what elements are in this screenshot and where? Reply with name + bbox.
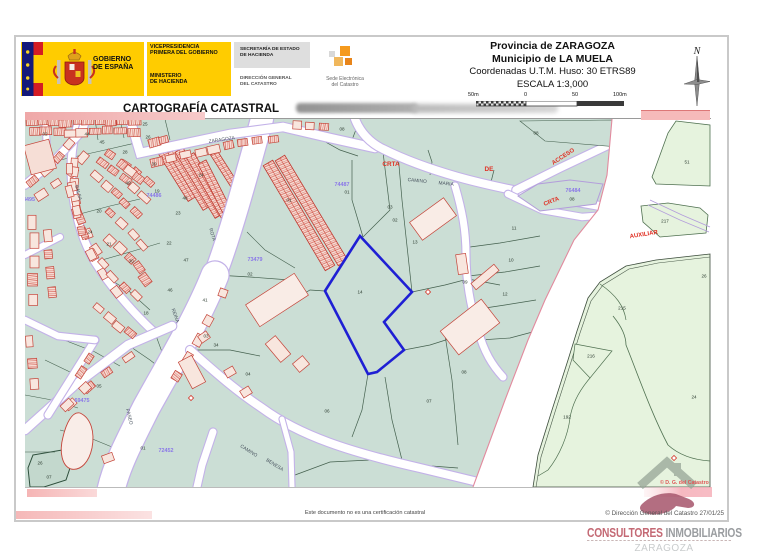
svg-text:215: 215: [618, 306, 626, 311]
svg-text:01: 01: [344, 190, 350, 195]
svg-text:39: 39: [151, 162, 157, 167]
svg-text:24: 24: [691, 395, 697, 400]
svg-text:73479: 73479: [248, 257, 263, 263]
svg-text:40: 40: [125, 181, 131, 186]
svg-text:01: 01: [140, 446, 146, 451]
svg-text:08: 08: [461, 370, 467, 375]
svg-text:© D. G. del Catastro: © D. G. del Catastro: [660, 479, 709, 486]
svg-text:34: 34: [213, 343, 219, 348]
svg-text:46: 46: [167, 288, 173, 293]
svg-text:08: 08: [533, 131, 539, 136]
svg-text:30: 30: [128, 259, 134, 264]
svg-text:217: 217: [661, 219, 669, 224]
svg-text:02: 02: [42, 132, 48, 137]
svg-text:07: 07: [46, 475, 52, 480]
svg-text:26: 26: [37, 461, 43, 466]
svg-text:21: 21: [106, 242, 112, 247]
svg-text:DE: DE: [485, 166, 495, 173]
svg-text:74487: 74487: [335, 182, 350, 188]
svg-text:05: 05: [96, 384, 102, 389]
svg-text:03: 03: [203, 334, 209, 339]
svg-text:24: 24: [198, 173, 204, 178]
svg-text:07: 07: [426, 399, 432, 404]
svg-text:76484: 76484: [566, 188, 581, 194]
svg-text:06: 06: [324, 409, 330, 414]
svg-text:44: 44: [84, 132, 90, 137]
svg-text:N: N: [693, 46, 702, 57]
svg-text:11: 11: [512, 226, 517, 231]
svg-text:69475: 69475: [75, 398, 90, 404]
svg-text:04: 04: [245, 372, 251, 377]
svg-text:26: 26: [145, 135, 151, 140]
svg-text:25: 25: [142, 122, 148, 127]
svg-text:51: 51: [684, 160, 690, 165]
svg-text:45: 45: [99, 140, 105, 145]
svg-text:12: 12: [502, 292, 508, 297]
svg-text:24: 24: [87, 230, 93, 235]
svg-text:26: 26: [701, 274, 707, 279]
svg-text:72452: 72452: [159, 448, 174, 454]
svg-text:01: 01: [286, 198, 292, 203]
svg-text:08: 08: [339, 127, 345, 132]
svg-text:18: 18: [143, 311, 149, 316]
svg-text:10: 10: [508, 258, 514, 263]
svg-text:13: 13: [412, 240, 418, 245]
svg-text:CRTA: CRTA: [382, 161, 400, 168]
svg-text:02: 02: [247, 272, 253, 277]
svg-text:09: 09: [462, 280, 468, 285]
svg-text:216: 216: [587, 354, 595, 359]
svg-text:41: 41: [202, 298, 208, 303]
svg-text:48: 48: [182, 196, 188, 201]
svg-text:47: 47: [183, 258, 189, 263]
svg-text:22: 22: [166, 241, 172, 246]
svg-text:8495: 8495: [25, 197, 35, 203]
svg-text:74486: 74486: [147, 193, 162, 199]
svg-text:03: 03: [387, 205, 393, 210]
svg-text:20: 20: [96, 209, 102, 214]
svg-text:14: 14: [357, 290, 363, 295]
svg-text:02: 02: [392, 218, 398, 223]
svg-text:08: 08: [569, 197, 575, 202]
svg-text:28: 28: [122, 150, 128, 155]
svg-text:192: 192: [563, 415, 571, 420]
svg-text:23: 23: [175, 211, 181, 216]
